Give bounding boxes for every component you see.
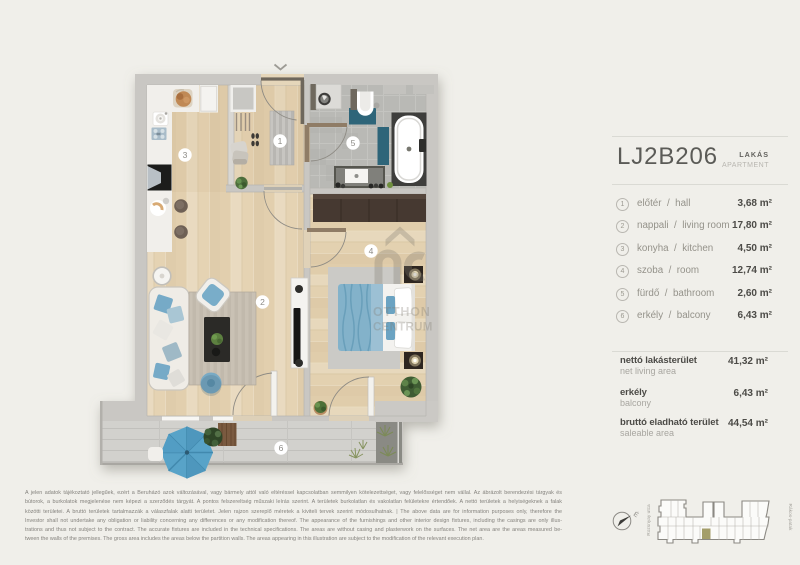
svg-text:6: 6: [279, 443, 284, 453]
svg-text:Rákos-patak: Rákos-patak: [787, 504, 793, 532]
svg-text:CENTRUM: CENTRUM: [373, 322, 433, 334]
svg-text:É: É: [632, 509, 641, 519]
svg-text:OTTHON: OTTHON: [373, 305, 431, 319]
svg-text:1: 1: [278, 136, 283, 146]
svg-text:5: 5: [351, 138, 356, 148]
svg-text:3: 3: [183, 150, 188, 160]
svg-text:2: 2: [260, 297, 265, 307]
svg-text:Rozsnyay utca: Rozsnyay utca: [646, 504, 652, 536]
svg-text:4: 4: [369, 246, 374, 256]
